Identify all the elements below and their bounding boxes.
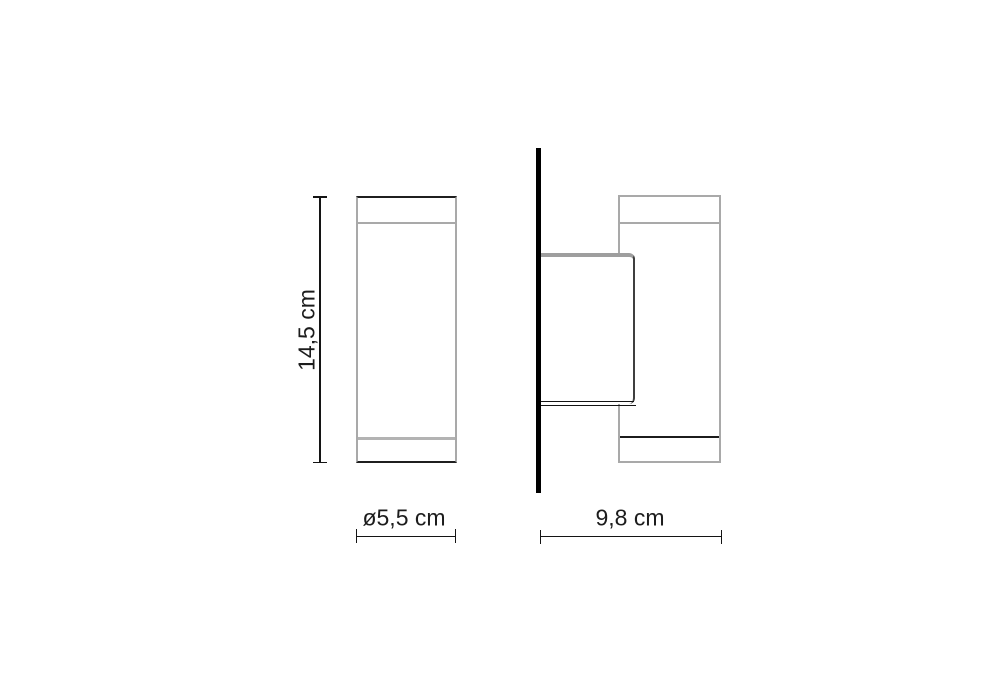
front-view-bottom-seam-line	[358, 437, 455, 440]
front-view-top-seam-line	[358, 222, 455, 224]
bracket-bottom-edge-line-2	[541, 405, 636, 406]
depth-dimension-tick-right	[721, 530, 723, 544]
depth-dimension-tick-left	[540, 530, 542, 544]
side-view-top-seam-line	[620, 222, 719, 224]
height-dimension-tick-bottom	[313, 462, 327, 464]
side-view-bottom-seam-line	[620, 436, 719, 438]
height-dimension-label: 14,5 cm	[294, 289, 321, 371]
height-dimension-tick-top	[313, 196, 327, 198]
dimension-drawing: 14,5 cm ø5,5 cm 9,8 cm	[0, 0, 1000, 700]
diameter-dimension-tick-left	[356, 529, 358, 543]
depth-dimension-line	[540, 536, 721, 537]
wall-mount-bracket	[541, 253, 635, 404]
depth-dimension-label: 9,8 cm	[595, 505, 664, 532]
bracket-bottom-edge-line-1	[541, 401, 634, 402]
wall-line	[536, 148, 541, 493]
diameter-dimension-tick-right	[455, 529, 457, 543]
diameter-dimension-label: ø5,5 cm	[362, 505, 445, 532]
diameter-dimension-line	[356, 536, 455, 537]
front-view-lamp-body	[356, 196, 457, 463]
